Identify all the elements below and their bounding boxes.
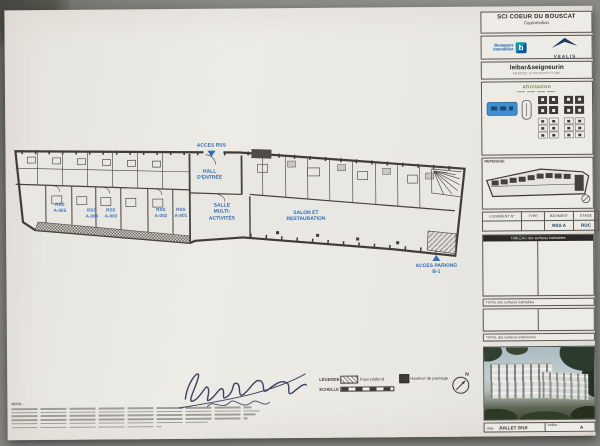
scale-bar [340,387,394,392]
entry-arrow-icon [207,151,215,157]
indice-label: Indice : [546,423,560,427]
rendering-photo-box [483,346,596,421]
bouygues-b-icon: b [516,42,527,53]
key-plan [483,164,593,205]
label-salon-restauration: SALON ETRESTAURATION [246,209,366,222]
label-acces-parking: ACCES PARKINGB-1 [386,263,486,276]
room-label-a003: RSSA-003 [98,207,124,218]
floor-picto-grid-a [538,96,558,114]
logement-table: LOGEMENT N° TYPE BATIMENT ETAGE RSS A RD… [482,211,599,232]
legend: LÉGENDE Faux plafond ECHELLE Hauteur de … [319,371,479,372]
legend-title: LÉGENDE [319,377,339,382]
rendering-building-main [490,363,552,398]
faux-plafond-swatch [341,376,359,384]
operator-box: afinitation [481,81,594,156]
drawing-sheet: ACCES RSS HALLD'ENTRÉE SALLEMULTI-ACTIVI… [4,6,595,441]
date-label: date [485,426,499,430]
north-arrow-icon: N [452,377,469,394]
date-value: JUILLET 2019 [499,425,545,430]
title-block: SCI COEUR DU BOUSCAT Copromotion Bouygue… [480,10,594,11]
dark-roof-rect [251,149,271,159]
total1-bar: TOTAL des surfaces habitables [483,298,595,307]
passage-swatch [399,374,409,383]
legend-faux-plafond: Faux plafond [360,376,384,381]
floor-picto-grid-b [564,96,584,114]
logos-box: Bouygues Immobilier b VEALIS [481,35,593,60]
hatched-zone [427,231,456,254]
reperage-label: REPERAGE [482,158,592,164]
date-row-box: date JUILLET 2019 Indice : A [484,422,596,433]
surfaces-table2-box [483,308,595,332]
legend-echelle: ECHELLE [319,387,339,392]
vealis-swoosh-icon [550,36,580,48]
logement-table-box: LOGEMENT N° TYPE BATIMENT ETAGE RSS A RD… [482,211,594,231]
label-hall: HALLD'ENTRÉE [180,168,240,181]
parking-arrow-icon [432,255,440,261]
operator-logo: afinitation [482,82,592,91]
project-subtitle: Copromotion [481,20,591,28]
architect-subtitle: AGENCE D'ARCHITECTURE [482,71,592,78]
total2-bar: TOTAL des surfaces extérieures [483,333,595,342]
vealis-logo: VEALIS [550,35,580,58]
level-cells [538,118,584,138]
rendering-building-right [542,372,588,400]
room-label-a001: RSSA-001 [168,207,194,218]
reperage-box: REPERAGE [481,157,593,210]
room-label-a005: RSSA-005 [47,202,73,213]
architect-box: leibar&seigneurin AGENCE D'ARCHITECTURE [481,61,593,80]
pictogram-panel [482,94,592,141]
photographed-plan-sheet: { "colors":{"label_blue":"#2e6cb5","pape… [0,0,600,446]
indice-value: A [569,425,595,430]
bouygues-immobilier-logo: Bouygues Immobilier b [493,42,526,53]
surfaces-table-box: TABLEAU des surfaces habitables [482,234,594,297]
surfaces-table-body [483,241,593,297]
label-acces-rss: ACCES RSS [181,142,241,149]
project-box: SCI COEUR DU BOUSCAT Copromotion [480,11,592,34]
building-rendering [484,347,595,420]
handwritten-signature [177,354,309,417]
label-salle-multi: SALLEMULTI-ACTIVITÉS [194,202,250,221]
legend-passage: Hauteur de passage [410,375,448,380]
